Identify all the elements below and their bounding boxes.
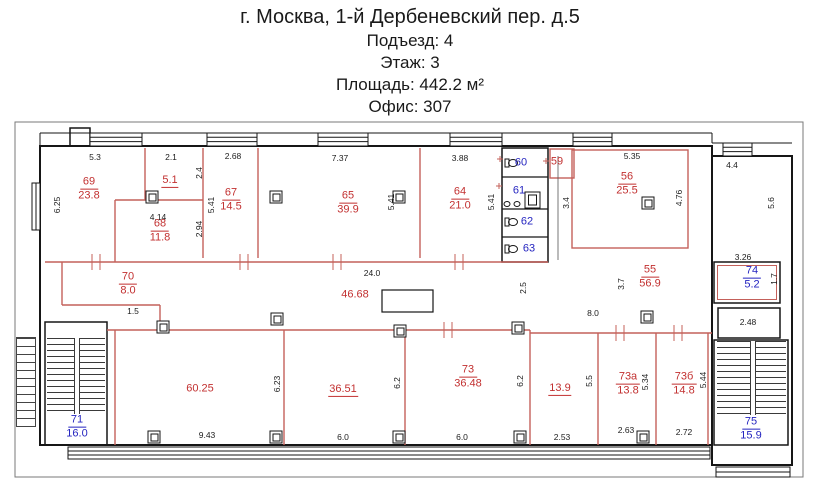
structural-walls xyxy=(40,128,792,465)
header: г. Москва, 1-й Дербеневский пер. д.5 Под… xyxy=(0,4,820,118)
staircase-71 xyxy=(47,338,105,414)
address-line: г. Москва, 1-й Дербеневский пер. д.5 xyxy=(0,4,820,30)
door-ticks xyxy=(92,254,682,341)
area-line: Площадь: 442.2 м² xyxy=(0,74,820,96)
entrance-line: Подъезд: 4 xyxy=(0,30,820,52)
outer-frame xyxy=(15,122,803,477)
wc-fixtures xyxy=(496,156,549,253)
partition-walls xyxy=(45,148,777,445)
exterior-ladder xyxy=(16,337,36,427)
staircase-75 xyxy=(717,341,786,415)
floor-plan-page: { "header": { "address": "г. Москва, 1-й… xyxy=(0,0,820,484)
office-line: Офис: 307 xyxy=(0,96,820,118)
floor-plan xyxy=(0,120,820,484)
stair-rail xyxy=(750,341,756,415)
floor-line: Этаж: 3 xyxy=(0,52,820,74)
stair-rail xyxy=(74,338,80,414)
plan-drawing xyxy=(0,120,820,484)
